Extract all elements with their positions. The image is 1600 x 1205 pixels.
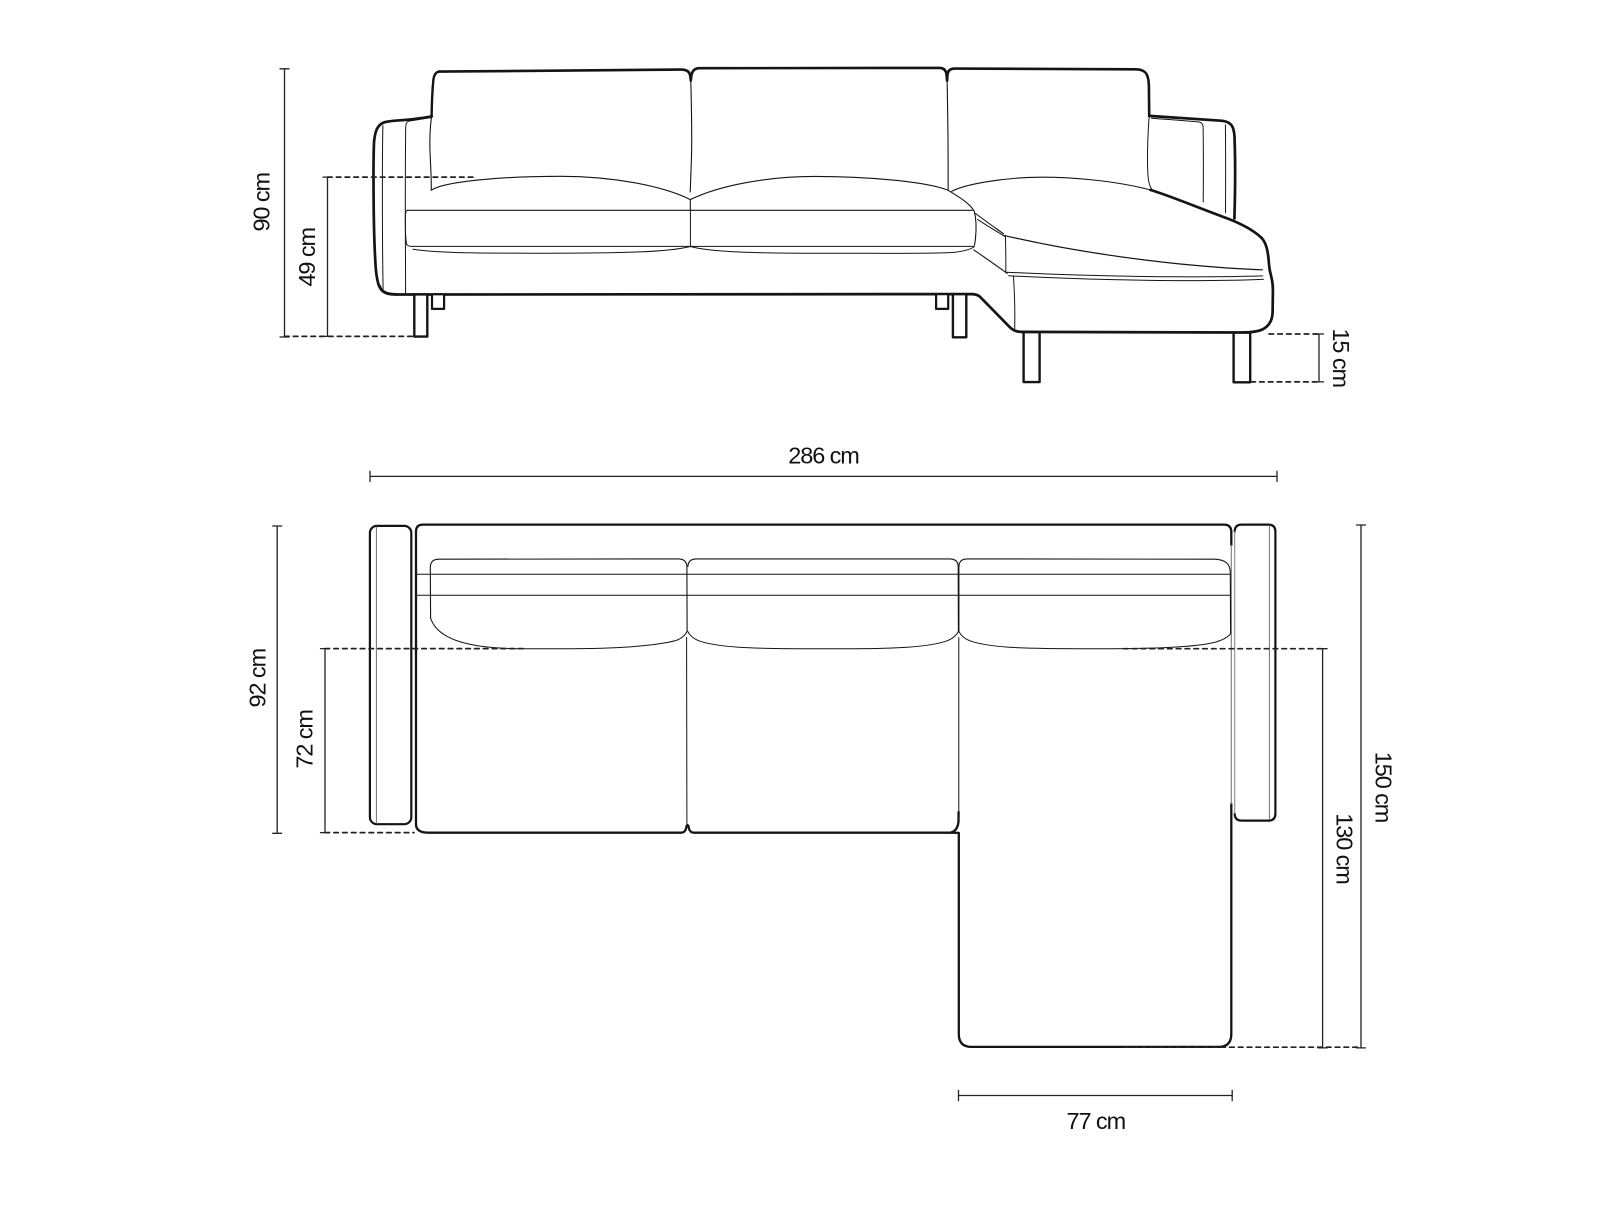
svg-text:92 cm: 92 cm — [245, 648, 271, 707]
svg-text:77 cm: 77 cm — [1067, 1108, 1126, 1134]
svg-text:130 cm: 130 cm — [1332, 813, 1358, 884]
svg-text:72 cm: 72 cm — [292, 710, 318, 769]
svg-text:150 cm: 150 cm — [1371, 752, 1397, 823]
svg-text:90 cm: 90 cm — [249, 173, 275, 232]
svg-text:15 cm: 15 cm — [1328, 328, 1354, 387]
svg-text:49 cm: 49 cm — [294, 228, 320, 287]
svg-text:286 cm: 286 cm — [788, 442, 859, 468]
